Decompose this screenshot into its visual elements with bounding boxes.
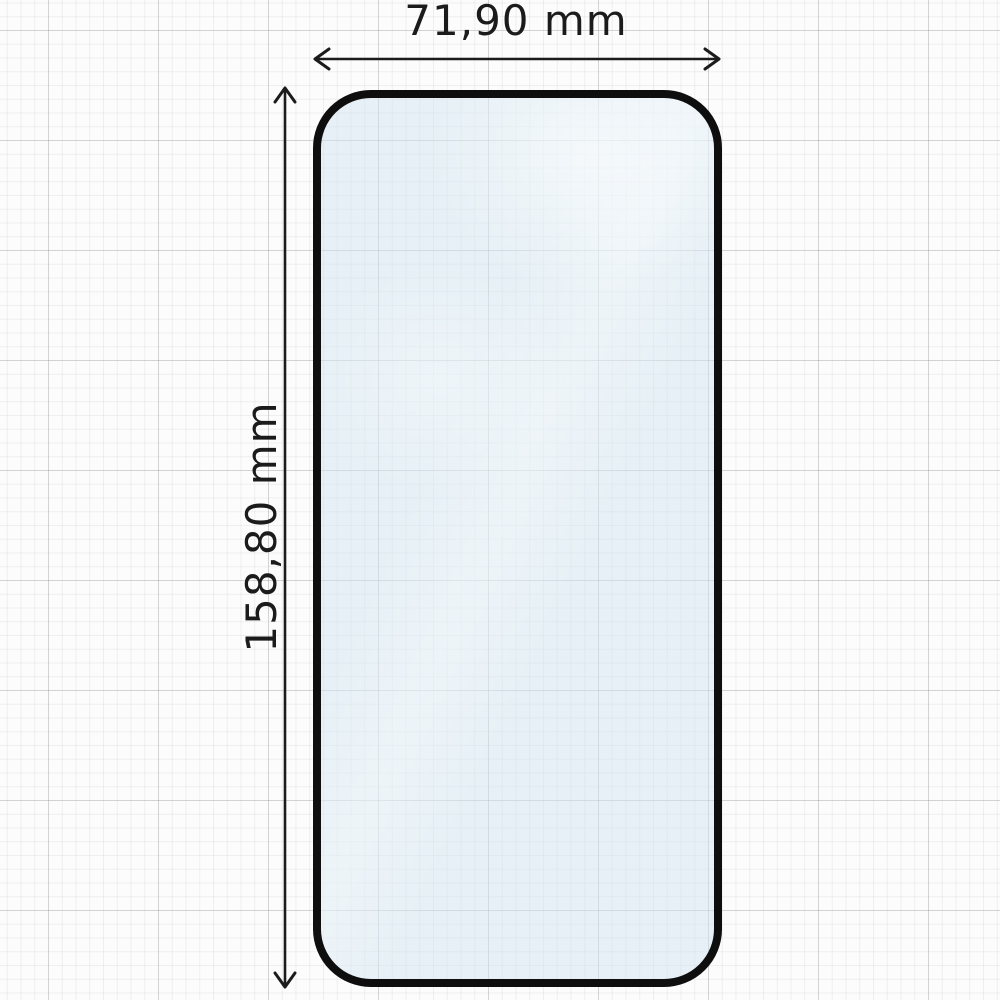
height-dimension-label: 158,80 mm [239, 377, 285, 677]
diagram-canvas: 71,90 mm 158,80 mm [0, 0, 1000, 1000]
screen-protector-outline [313, 90, 722, 987]
width-dimension-label: 71,90 mm [316, 0, 716, 44]
